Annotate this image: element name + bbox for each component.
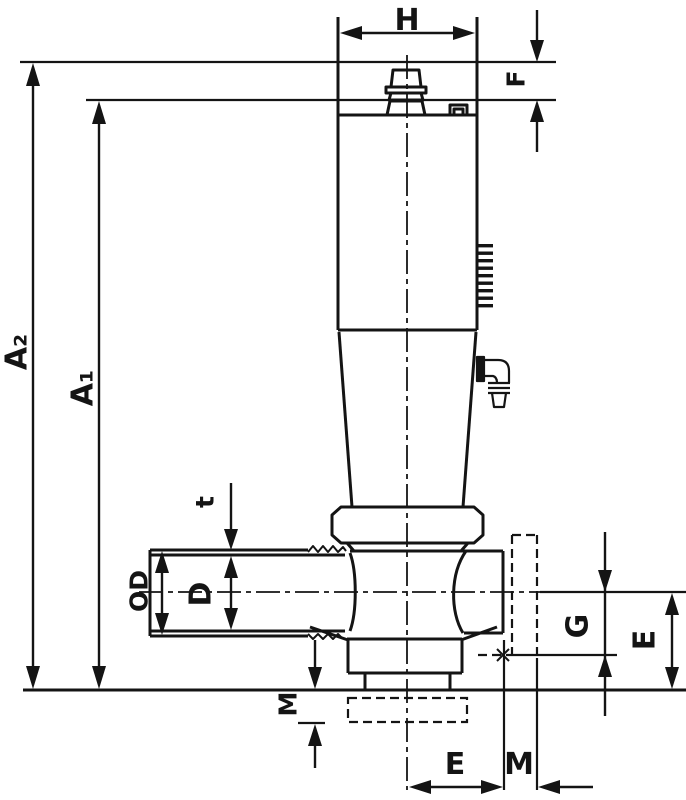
valve-outline xyxy=(23,17,686,690)
dim-M-bottom xyxy=(538,780,593,794)
label-F: F xyxy=(502,70,531,87)
knurl-marking-band xyxy=(476,244,493,307)
label-A1: A₁ xyxy=(66,370,101,406)
drawing-canvas: H F A₂ A₁ t OD D G E M E M xyxy=(0,0,686,800)
dim-D xyxy=(224,556,238,630)
dim-F xyxy=(530,10,544,152)
label-E-bottom: E xyxy=(445,747,466,782)
skirt-left-slant xyxy=(310,627,348,640)
label-M-bottom: M xyxy=(504,747,534,782)
stud-upper xyxy=(391,70,421,87)
stud-lower xyxy=(387,101,425,115)
label-D: D xyxy=(184,582,219,607)
label-E-side: E xyxy=(628,630,663,651)
dim-E-bottom xyxy=(409,780,503,794)
elbow-fitting xyxy=(477,357,510,407)
elbow-flange xyxy=(477,357,484,381)
union-nut-hidden-right xyxy=(512,535,537,658)
dim-M-side xyxy=(308,640,322,768)
dimensions xyxy=(26,10,679,794)
hidden-lines xyxy=(348,535,537,722)
dim-t xyxy=(224,483,238,550)
label-OD: OD xyxy=(125,570,154,612)
elbow-tip xyxy=(492,393,506,407)
label-A2: A₂ xyxy=(0,334,35,370)
dim-OD xyxy=(155,551,169,635)
cone-left-edge xyxy=(339,332,352,507)
dim-A2 xyxy=(26,63,40,689)
valve-dimension-drawing: H F A₂ A₁ t OD D G E M E M xyxy=(0,0,686,800)
weld-zigzag-top xyxy=(308,546,346,552)
label-t: t xyxy=(191,496,220,508)
label-G: G xyxy=(561,614,596,639)
dim-E-side xyxy=(665,593,679,689)
step1-outline xyxy=(348,640,462,673)
label-H: H xyxy=(394,3,419,38)
dim-G xyxy=(598,532,612,716)
label-M-side: M xyxy=(274,692,303,717)
cone-right-edge xyxy=(463,332,476,507)
extension-lines xyxy=(20,62,686,790)
elbow-thread-lines xyxy=(488,383,510,393)
